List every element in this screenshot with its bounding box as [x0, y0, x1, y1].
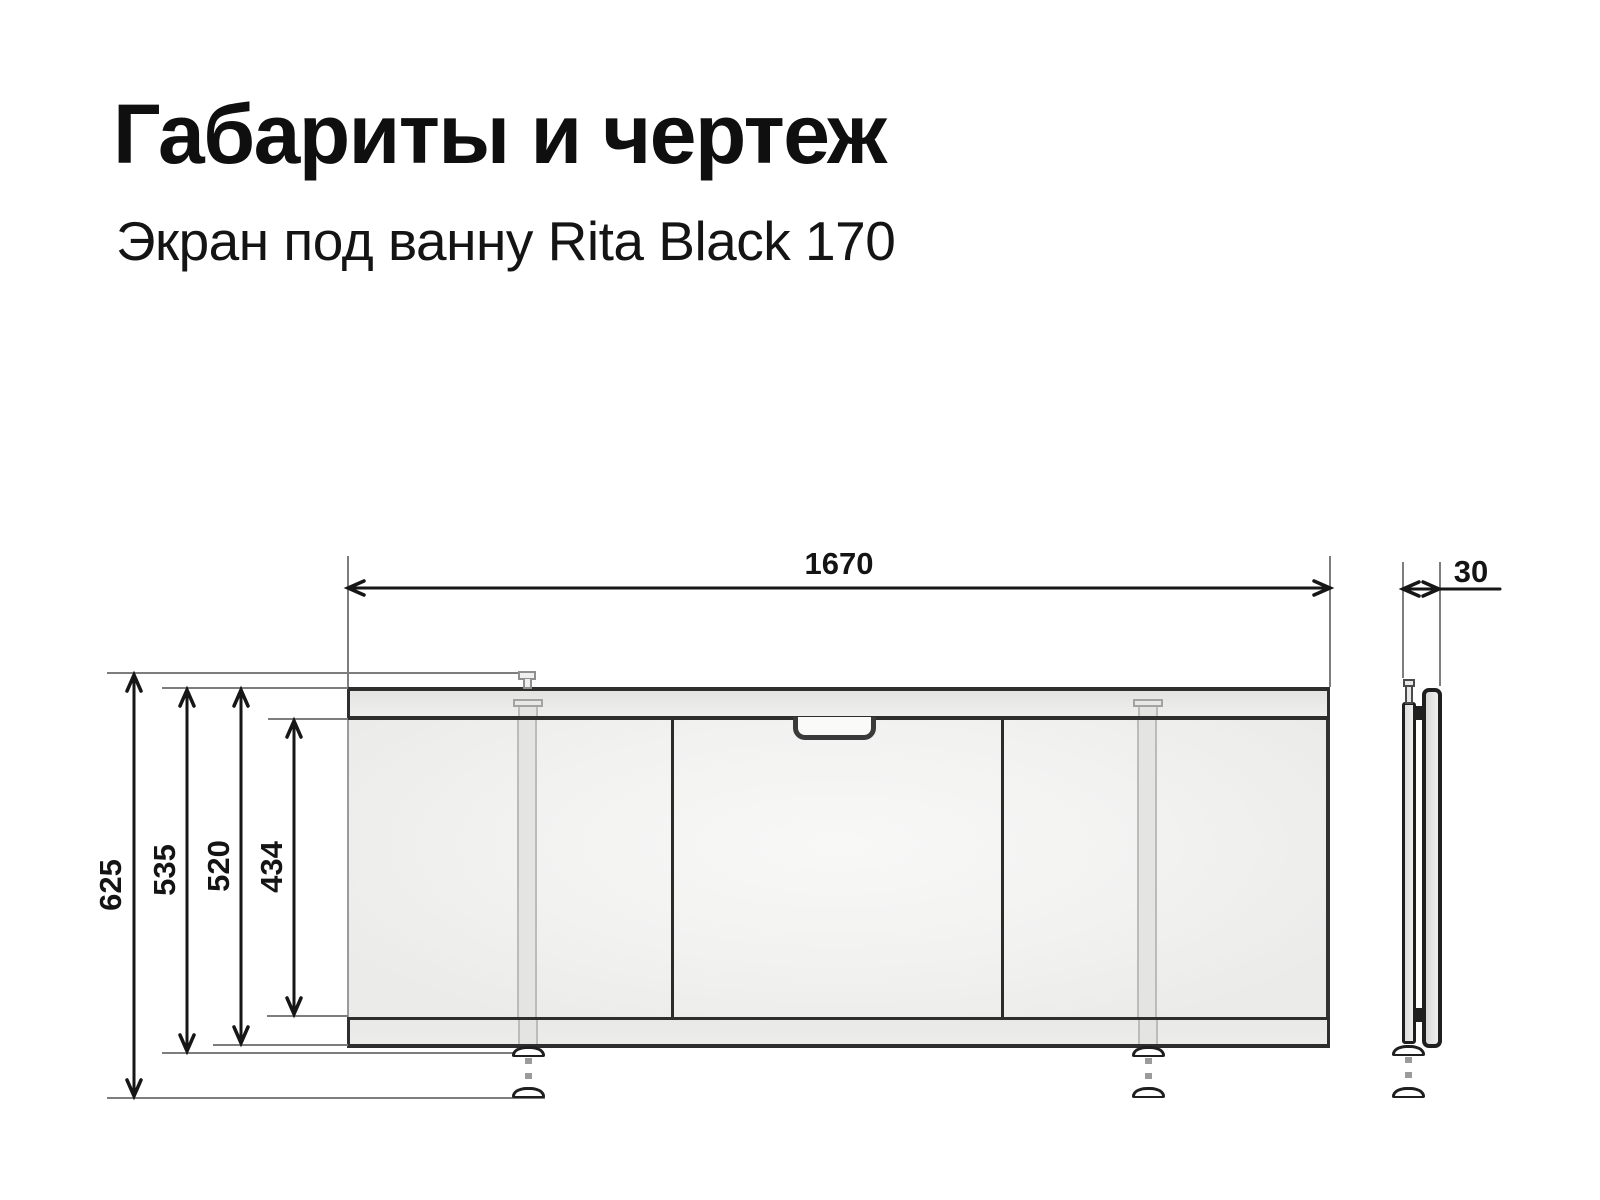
dim-label-door-height: 434: [254, 841, 290, 893]
left-foot: [512, 1046, 545, 1057]
extension-lines: [107, 556, 1440, 1098]
right-foot-dashed-link: [1145, 1058, 1152, 1084]
side-foot-extended: [1392, 1087, 1425, 1098]
side-foot-dashed-link: [1405, 1057, 1412, 1083]
left-foot-dashed-link: [525, 1058, 532, 1084]
dimension-linework: [0, 0, 1600, 1200]
dimension-lines: [127, 581, 1500, 1096]
dim-label-panel-height: 520: [201, 840, 237, 892]
dim-label-total-height: 625: [93, 859, 129, 911]
left-foot-extended: [512, 1087, 545, 1098]
dim-label-width: 1670: [805, 546, 874, 582]
right-foot-extended: [1132, 1087, 1165, 1098]
dim-label-height-with-feet: 535: [147, 844, 183, 896]
drawing-canvas: Габариты и чертеж Экран под ванну Rita B…: [0, 0, 1600, 1200]
adjuster-screw-stem: [523, 679, 532, 689]
side-foot: [1392, 1045, 1425, 1056]
dim-label-depth: 30: [1454, 554, 1488, 590]
right-foot: [1132, 1046, 1165, 1057]
